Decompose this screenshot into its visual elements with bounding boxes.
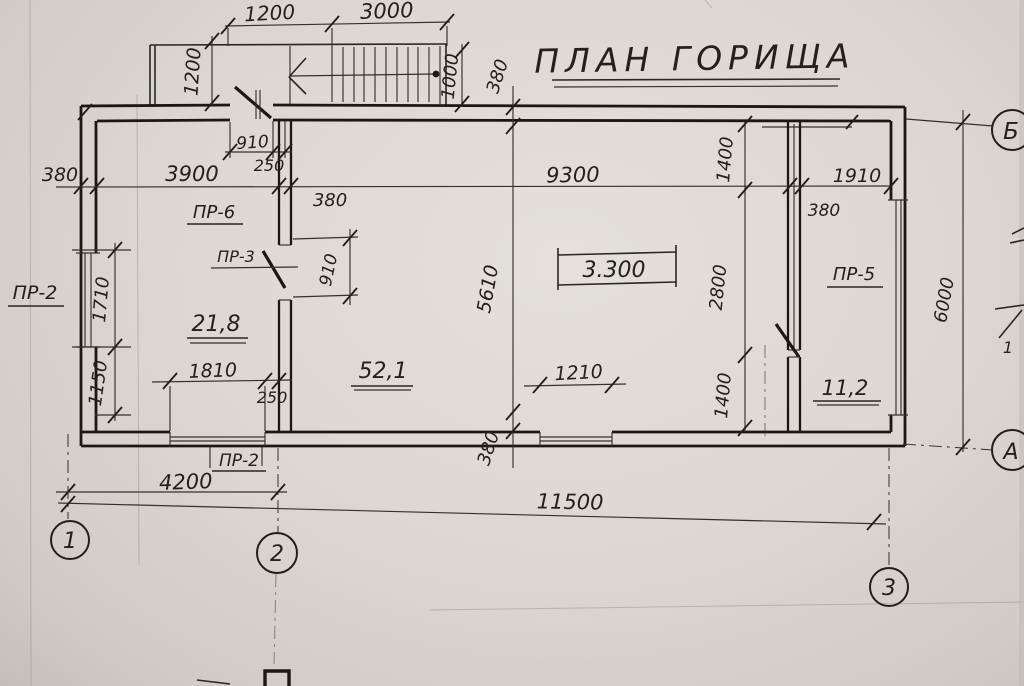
room-right-area: 11,2 [822, 376, 869, 400]
label-pr3: ПР-3 [217, 247, 255, 266]
dim-wall-left: 380 [42, 164, 78, 186]
section-mark-label: 1 [1003, 338, 1013, 357]
dim-wall-bottom: 380 [473, 429, 504, 468]
label-pr2-left: ПР-2 [13, 282, 58, 304]
grid-label-b: Б [1003, 119, 1019, 145]
room-left-area: 21,8 [192, 312, 241, 337]
dim-wall-right-duct: 380 [808, 201, 840, 221]
dim-wall-mid: 380 [313, 190, 347, 211]
dim-pier-bottom: 250 [257, 388, 288, 407]
elevation-mark-value: 3.300 [583, 258, 646, 283]
grid-label-3: 3 [882, 576, 896, 601]
blueprint-sheet: ПЛАН ГОРИЩА [0, 0, 1024, 686]
dim-room-right-width: 1910 [833, 165, 881, 187]
stair-walkline-dot [433, 71, 440, 78]
dim-room-depth: 5610 [473, 263, 503, 314]
dim-stair-width: 1200 [244, 0, 296, 26]
dim-window-bottom-mid: 1210 [554, 361, 603, 386]
dim-stair-height: 1000 [438, 53, 464, 101]
drawing-title: ПЛАН ГОРИЩА [534, 36, 856, 81]
dim-door6-width: 910 [236, 132, 270, 154]
dim-duct-offset-top: 1400 [713, 136, 738, 183]
label-pr6: ПР-6 [193, 202, 235, 223]
attic-plan-drawing: ПЛАН ГОРИЩА [0, 0, 1024, 686]
door-pr6-leaf [235, 87, 271, 118]
grid-label-1: 1 [63, 529, 77, 554]
label-pr5: ПР-5 [833, 264, 875, 285]
paper-artifacts [30, 0, 1024, 686]
door-pr3-leaf [263, 251, 285, 288]
window-bottom-left [170, 432, 265, 446]
title-block: ПЛАН ГОРИЩА [534, 36, 856, 87]
label-pr2-bottom: ПР-2 [219, 451, 259, 471]
dim-span-total: 11500 [537, 489, 604, 514]
dim-window-bottom-left: 1810 [188, 359, 237, 383]
dim-side-total: 6000 [930, 276, 959, 325]
next-drawing-fragment [197, 671, 289, 686]
dim-duct-offset-bottom: 1400 [711, 372, 736, 419]
dim-stair-run: 3000 [360, 0, 414, 24]
dim-door3-width: 910 [316, 252, 342, 288]
window-bottom-mid [540, 432, 612, 446]
dim-window-left-bottom: 1150 [85, 359, 112, 407]
dim-window-left-top: 1710 [89, 276, 114, 323]
grid-label-2: 2 [270, 542, 284, 567]
dim-duct-span: 2800 [706, 264, 732, 312]
dim-stair-depth: 1200 [180, 47, 205, 97]
dim-wall-top: 380 [482, 57, 513, 96]
dim-room-main-width: 9300 [546, 163, 600, 188]
dim-room-left-width: 3900 [165, 162, 218, 186]
dim-door6-pier: 250 [254, 156, 285, 175]
room-main-area: 52,1 [359, 359, 408, 384]
dim-span-1-2: 4200 [159, 469, 213, 495]
grid-label-a: А [1001, 440, 1018, 465]
